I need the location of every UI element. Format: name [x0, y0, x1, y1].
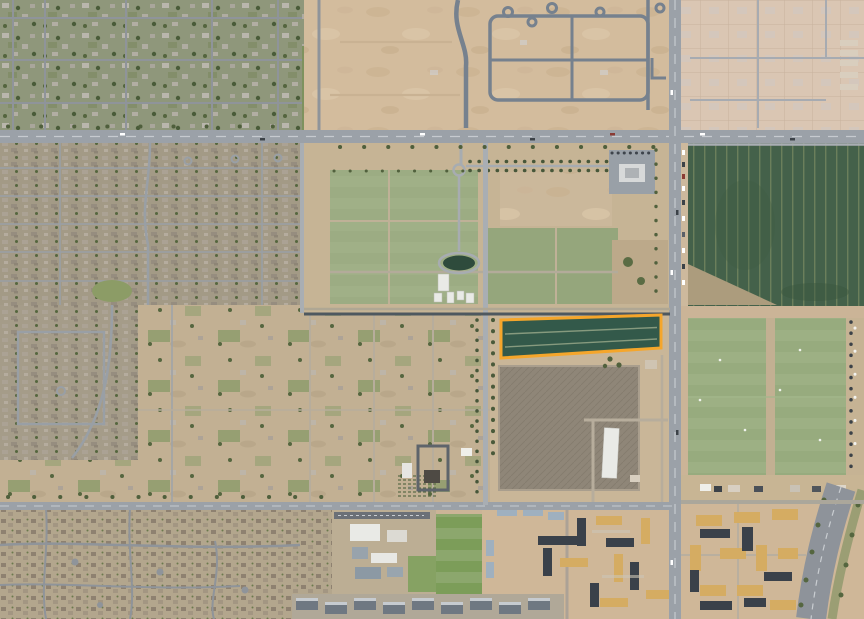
region-apartments-east: [672, 487, 864, 619]
crop-mottle: [715, 180, 775, 270]
dark-roof-building: [424, 470, 440, 483]
region-crop-field: [681, 143, 864, 306]
region-nw-residential: [0, 0, 304, 132]
region-suburb-southwest: [0, 305, 138, 460]
school-building: [350, 524, 380, 541]
region-school-campus: [332, 510, 482, 602]
school-building: [355, 567, 381, 579]
parking-row: [602, 575, 644, 578]
pond: [443, 256, 475, 271]
region-subdivision-south: [0, 508, 334, 619]
region-gray-building-strip: [292, 594, 564, 619]
white-shed: [461, 448, 472, 456]
small-structure: [630, 475, 640, 482]
region-suburb-west: [0, 143, 302, 305]
parking-row: [592, 530, 630, 533]
small-structure: [645, 360, 657, 369]
tree-clump: [623, 257, 633, 267]
tree-clump: [637, 277, 645, 285]
region-graded-development: [304, 0, 674, 130]
region-dirt-lots-northeast: [681, 0, 864, 130]
aerial-photo: [0, 0, 864, 619]
arterial-south: [0, 502, 674, 510]
street-south-east: [681, 500, 864, 504]
se-dirt-panel: [612, 240, 668, 304]
park-patch: [92, 280, 132, 302]
school-lawn: [408, 556, 436, 592]
school-building: [371, 553, 397, 563]
white-building: [402, 463, 412, 478]
road-center-vertical: [483, 143, 488, 505]
aerial-map-viewport[interactable]: [0, 0, 864, 619]
school-building: [352, 547, 368, 559]
church-roof-inner: [625, 168, 639, 178]
school-building: [387, 567, 403, 577]
road-west-vertical: [300, 143, 304, 313]
crop-mottle: [781, 283, 849, 301]
suburb-streets: [0, 143, 300, 305]
region-sports-fields: [672, 318, 864, 503]
building-under-construction: [602, 428, 620, 479]
school-building: [387, 530, 407, 542]
